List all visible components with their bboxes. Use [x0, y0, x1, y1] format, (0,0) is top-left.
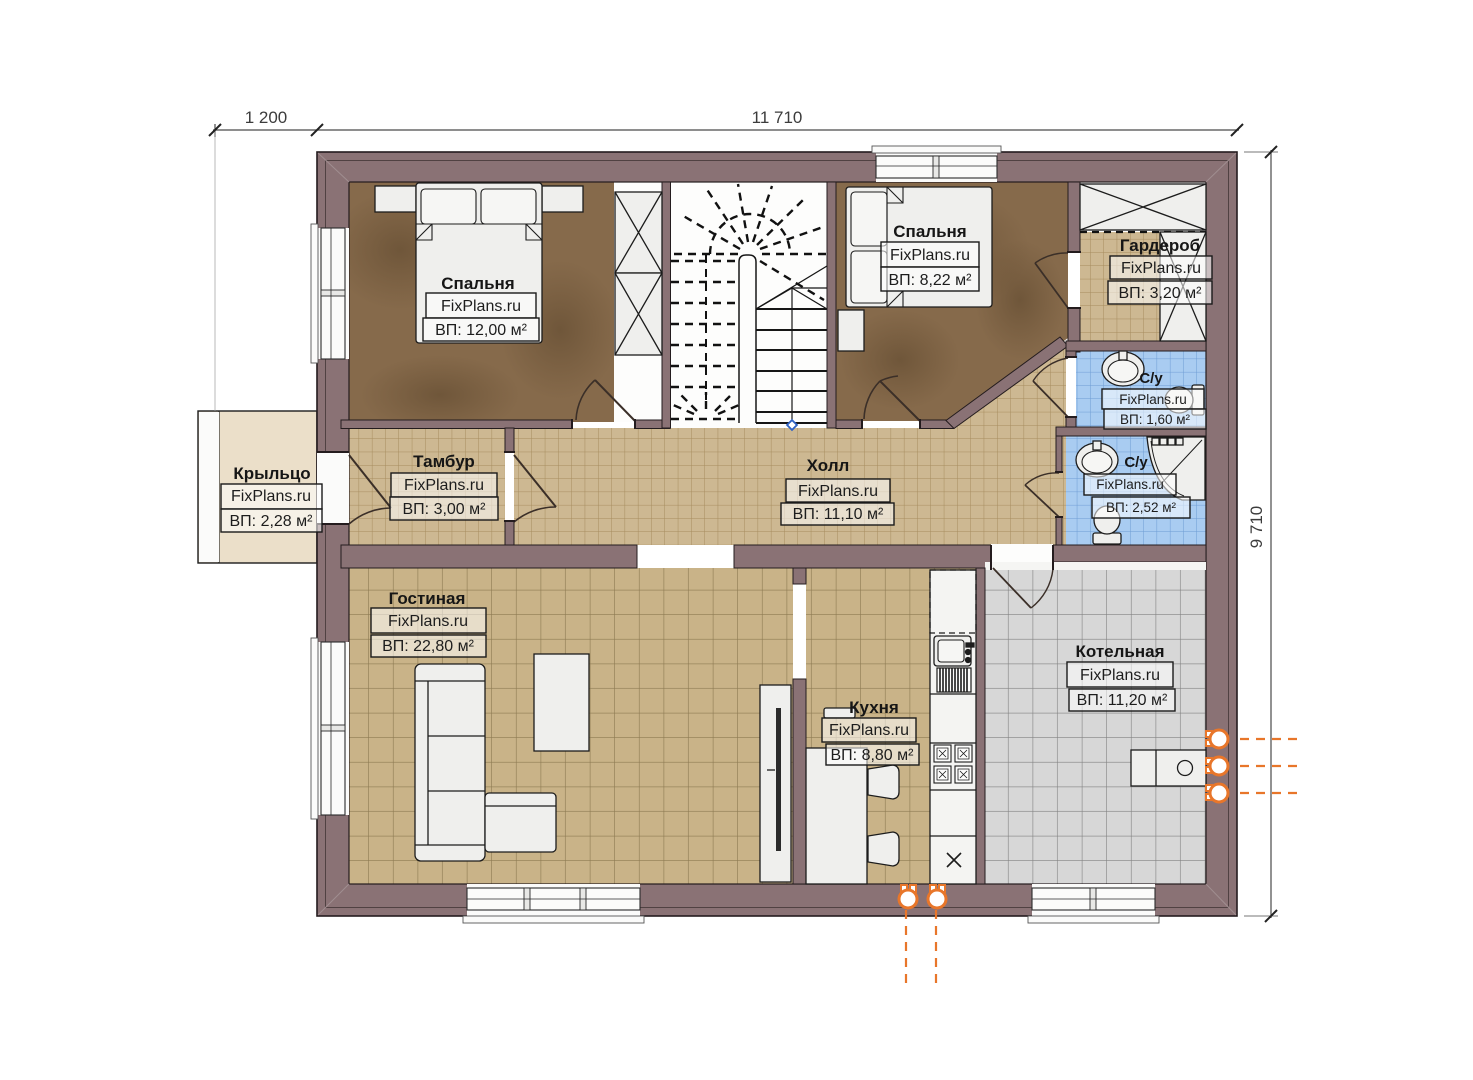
svg-text:FixPlans.ru: FixPlans.ru [890, 247, 970, 264]
svg-text:Холл: Холл [807, 456, 850, 475]
svg-text:Гостиная: Гостиная [389, 589, 466, 608]
svg-text:ВП: 8,22 м²: ВП: 8,22 м² [889, 272, 973, 289]
svg-text:1 200: 1 200 [245, 108, 288, 127]
svg-text:FixPlans.ru: FixPlans.ru [798, 483, 878, 500]
svg-text:ВП: 3,20 м²: ВП: 3,20 м² [1119, 285, 1203, 302]
svg-text:ВП: 1,60 м²: ВП: 1,60 м² [1120, 412, 1191, 427]
svg-text:FixPlans.ru: FixPlans.ru [1096, 477, 1164, 492]
svg-text:Гардероб: Гардероб [1120, 236, 1200, 255]
svg-text:Спальня: Спальня [441, 274, 514, 293]
svg-text:ВП: 2,52 м²: ВП: 2,52 м² [1106, 500, 1177, 515]
svg-text:С/у: С/у [1124, 454, 1148, 471]
svg-text:FixPlans.ru: FixPlans.ru [829, 722, 909, 739]
svg-text:С/у: С/у [1139, 370, 1163, 387]
svg-text:FixPlans.ru: FixPlans.ru [1119, 392, 1187, 407]
svg-text:Спальня: Спальня [893, 222, 966, 241]
svg-text:FixPlans.ru: FixPlans.ru [441, 298, 521, 315]
svg-text:ВП: 11,10 м²: ВП: 11,10 м² [793, 506, 884, 523]
svg-text:Крыльцо: Крыльцо [233, 464, 310, 483]
svg-text:FixPlans.ru: FixPlans.ru [1121, 260, 1201, 277]
svg-text:9 710: 9 710 [1247, 506, 1266, 549]
svg-text:ВП: 22,80 м²: ВП: 22,80 м² [382, 638, 475, 655]
svg-text:ВП: 11,20 м²: ВП: 11,20 м² [1077, 692, 1168, 709]
svg-text:ВП: 3,00 м²: ВП: 3,00 м² [403, 501, 487, 518]
svg-text:ВП: 12,00 м²: ВП: 12,00 м² [435, 322, 528, 339]
svg-text:ВП: 2,28 м²: ВП: 2,28 м² [230, 513, 314, 530]
svg-text:FixPlans.ru: FixPlans.ru [404, 477, 484, 494]
svg-text:11 710: 11 710 [752, 108, 803, 127]
svg-text:Тамбур: Тамбур [413, 452, 475, 471]
svg-text:Кухня: Кухня [849, 698, 899, 717]
svg-text:FixPlans.ru: FixPlans.ru [1080, 667, 1160, 684]
svg-text:FixPlans.ru: FixPlans.ru [231, 488, 311, 505]
svg-text:Котельная: Котельная [1075, 642, 1164, 661]
svg-text:FixPlans.ru: FixPlans.ru [388, 613, 468, 630]
svg-text:ВП: 8,80 м²: ВП: 8,80 м² [831, 747, 915, 764]
